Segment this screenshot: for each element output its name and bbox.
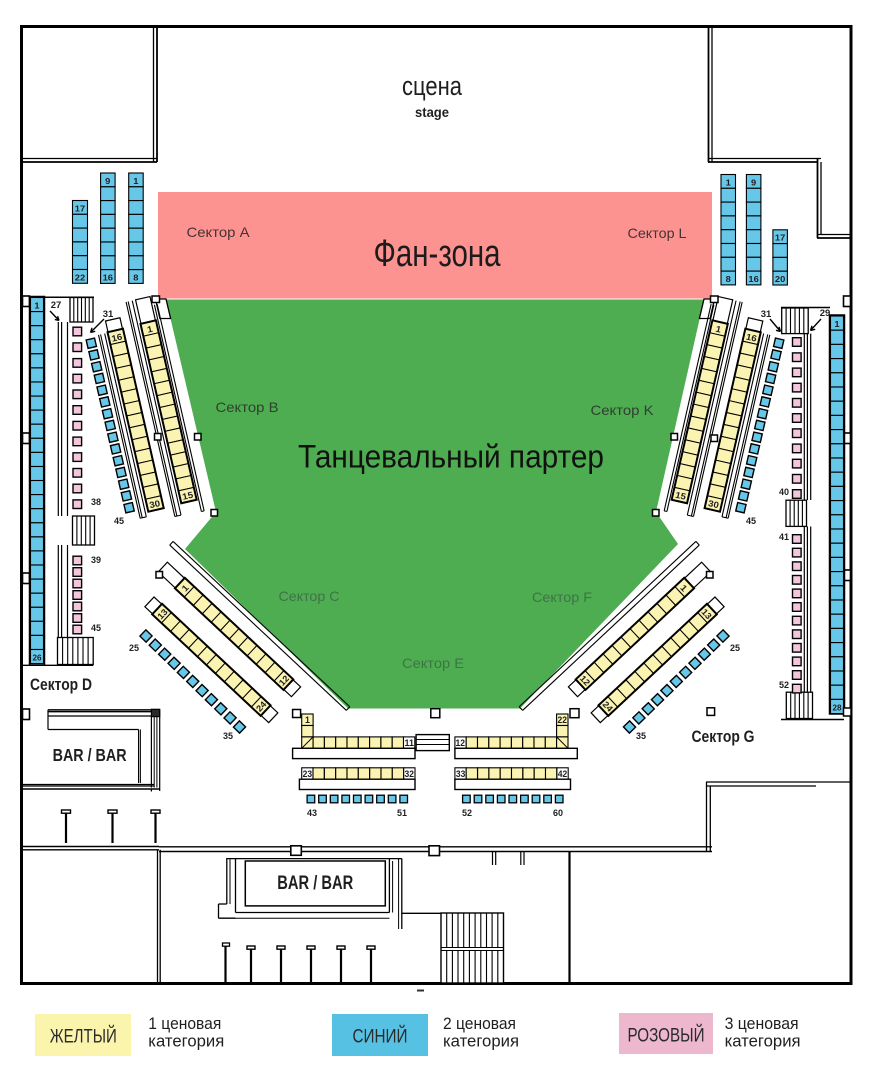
svg-text:сцена: сцена	[402, 71, 463, 101]
svg-text:Танцевальный партер: Танцевальный партер	[298, 439, 604, 475]
svg-text:31: 31	[761, 309, 772, 320]
svg-text:22: 22	[75, 272, 86, 282]
svg-text:38: 38	[91, 497, 101, 507]
svg-text:1 ценовая: 1 ценовая	[148, 1014, 221, 1033]
svg-text:Сектор B: Сектор B	[216, 399, 279, 415]
svg-text:52: 52	[779, 680, 789, 690]
svg-text:Сектор L: Сектор L	[628, 225, 687, 241]
svg-text:РОЗОВЫЙ: РОЗОВЫЙ	[628, 1025, 705, 1047]
svg-text:39: 39	[91, 555, 101, 565]
svg-text:1: 1	[834, 319, 839, 329]
svg-text:9: 9	[751, 177, 756, 187]
svg-text:1: 1	[305, 715, 310, 725]
svg-text:2 ценовая: 2 ценовая	[443, 1014, 516, 1033]
svg-text:52: 52	[462, 808, 472, 818]
svg-text:23: 23	[303, 769, 313, 779]
svg-text:категория: категория	[725, 1032, 801, 1051]
svg-text:26: 26	[33, 653, 42, 663]
svg-text:33: 33	[456, 769, 466, 779]
svg-text:35: 35	[636, 731, 646, 741]
svg-text:25: 25	[730, 643, 740, 653]
svg-text:3 ценовая: 3 ценовая	[725, 1014, 799, 1033]
svg-text:BAR / BAR: BAR / BAR	[53, 745, 127, 765]
svg-text:1: 1	[726, 177, 731, 187]
svg-text:45: 45	[746, 516, 756, 526]
svg-text:11: 11	[405, 738, 415, 748]
svg-text:27: 27	[51, 300, 62, 311]
svg-text:СИНИЙ: СИНИЙ	[353, 1026, 408, 1048]
svg-text:Сектор D: Сектор D	[30, 675, 92, 694]
svg-text:Сектор G: Сектор G	[692, 728, 755, 746]
svg-text:17: 17	[75, 203, 86, 213]
svg-text:29: 29	[820, 308, 831, 319]
svg-text:категория: категория	[148, 1032, 224, 1051]
svg-text:41: 41	[779, 532, 789, 542]
svg-text:Сектор F: Сектор F	[532, 589, 592, 605]
svg-text:45: 45	[114, 516, 124, 526]
svg-text:BAR / BAR: BAR / BAR	[277, 873, 353, 894]
svg-text:45: 45	[91, 623, 101, 633]
svg-text:1: 1	[133, 176, 138, 186]
svg-text:8: 8	[726, 274, 731, 284]
svg-text:Сектор C: Сектор C	[279, 588, 340, 604]
svg-text:Фан-зона: Фан-зона	[374, 233, 502, 275]
svg-text:9: 9	[105, 176, 110, 186]
svg-text:43: 43	[307, 808, 317, 818]
svg-text:40: 40	[779, 487, 789, 497]
svg-text:17: 17	[775, 233, 786, 243]
svg-text:16: 16	[103, 272, 114, 282]
svg-text:28: 28	[833, 703, 842, 713]
svg-text:31: 31	[103, 309, 114, 320]
svg-text:16: 16	[748, 274, 759, 284]
svg-text:Сектор E: Сектор E	[402, 655, 464, 671]
svg-text:25: 25	[129, 643, 139, 653]
svg-text:Сектор A: Сектор A	[187, 224, 251, 240]
svg-text:32: 32	[405, 769, 415, 779]
svg-text:51: 51	[397, 808, 407, 818]
svg-text:22: 22	[558, 715, 568, 725]
svg-text:12: 12	[456, 738, 466, 748]
svg-text:20: 20	[775, 274, 786, 284]
svg-text:8: 8	[133, 272, 138, 282]
svg-text:категория: категория	[443, 1032, 519, 1051]
svg-text:stage: stage	[415, 104, 449, 120]
svg-text:60: 60	[553, 808, 563, 818]
svg-text:1: 1	[34, 301, 39, 311]
svg-text:ЖЕЛТЫЙ: ЖЕЛТЫЙ	[50, 1026, 117, 1048]
svg-text:35: 35	[223, 731, 233, 741]
svg-text:Сектор K: Сектор K	[591, 402, 655, 418]
svg-text:42: 42	[558, 769, 568, 779]
